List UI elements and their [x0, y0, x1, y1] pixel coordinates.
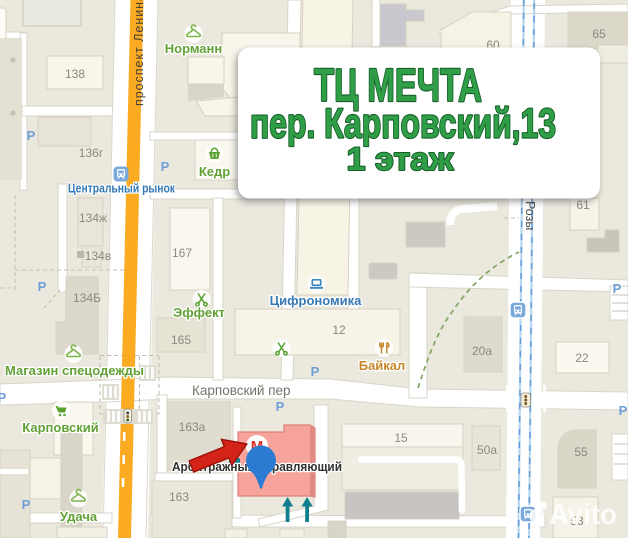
svg-text:P: P — [22, 497, 31, 512]
svg-text:Avito: Avito — [549, 499, 617, 531]
svg-text:P: P — [0, 390, 7, 405]
svg-text:P: P — [161, 159, 170, 174]
svg-text:Байкал: Байкал — [359, 358, 406, 373]
svg-text:проспект Ленина: проспект Ленина — [132, 0, 146, 106]
svg-text:Кедр: Кедр — [199, 164, 230, 179]
svg-text:134Б: 134Б — [73, 291, 101, 305]
svg-text:пер. Карповский,13: пер. Карповский,13 — [250, 100, 556, 147]
svg-text:Норманн: Норманн — [165, 41, 222, 56]
svg-text:Розы: Розы — [523, 201, 537, 230]
svg-text:Центральный рынок: Центральный рынок — [68, 181, 175, 196]
svg-text:Эффект: Эффект — [173, 305, 225, 320]
svg-text:Магазин спецодежды: Магазин спецодежды — [5, 363, 144, 378]
svg-text:P: P — [276, 399, 285, 414]
svg-text:136г: 136г — [79, 146, 104, 160]
svg-text:Карповский: Карповский — [22, 420, 98, 435]
svg-text:Цифрономика: Цифрономика — [270, 293, 362, 308]
svg-text:163: 163 — [169, 490, 189, 504]
svg-text:P: P — [38, 279, 47, 294]
svg-text:134ж: 134ж — [79, 211, 107, 225]
svg-text:163а: 163а — [179, 420, 206, 434]
svg-text:22: 22 — [575, 351, 589, 365]
svg-text:167: 167 — [172, 246, 192, 260]
svg-text:134в: 134в — [85, 249, 111, 263]
svg-text:P: P — [311, 364, 320, 379]
svg-text:15: 15 — [394, 431, 408, 445]
svg-text:Р: Р — [613, 281, 622, 296]
svg-text:1 этаж: 1 этаж — [347, 141, 455, 177]
svg-text:Карповский пер: Карповский пер — [192, 383, 291, 398]
svg-text:Р: Р — [619, 403, 628, 418]
svg-text:61: 61 — [576, 198, 590, 212]
svg-text:50а: 50а — [477, 443, 497, 457]
svg-text:138: 138 — [65, 67, 85, 81]
svg-text:20а: 20а — [472, 344, 492, 358]
svg-text:165: 165 — [171, 333, 191, 347]
svg-text:65: 65 — [592, 27, 606, 41]
svg-text:55: 55 — [574, 445, 588, 459]
svg-text:12: 12 — [332, 323, 346, 337]
svg-text:Удача: Удача — [60, 509, 98, 524]
svg-text:P: P — [27, 128, 36, 143]
